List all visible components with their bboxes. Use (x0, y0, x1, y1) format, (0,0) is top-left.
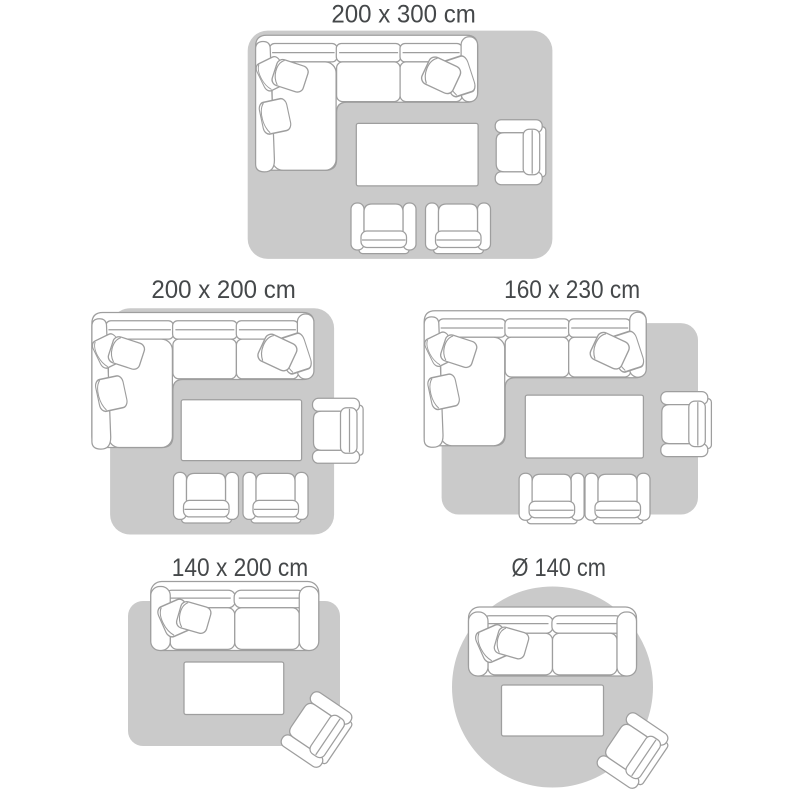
svg-text:200 x 300 cm: 200 x 300 cm (331, 0, 476, 28)
svg-text:140 x 200 cm: 140 x 200 cm (172, 554, 309, 582)
svg-text:Ø 140 cm: Ø 140 cm (511, 554, 606, 582)
svg-text:200 x 200 cm: 200 x 200 cm (151, 276, 296, 304)
svg-text:160 x 230 cm: 160 x 230 cm (504, 276, 640, 304)
